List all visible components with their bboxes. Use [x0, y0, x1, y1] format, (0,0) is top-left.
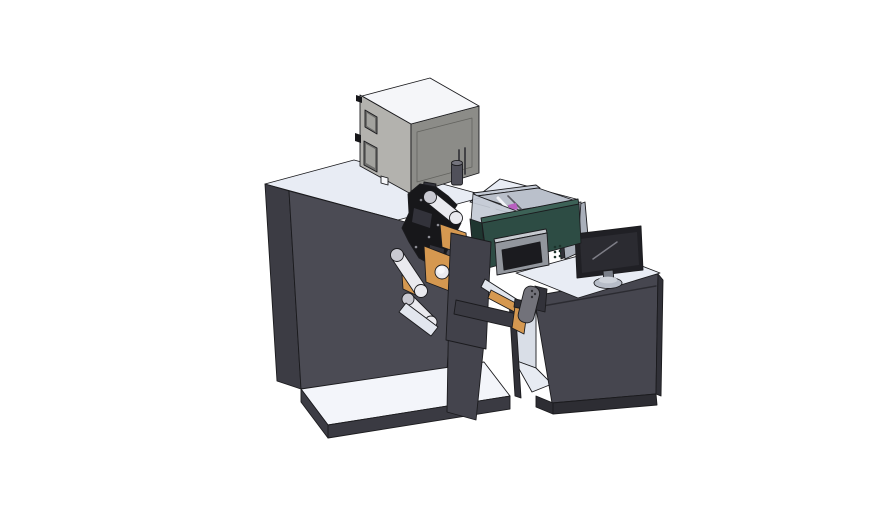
printhead-screw: [415, 246, 418, 249]
filter-cylinder: [452, 163, 463, 185]
paddle-dot: [531, 296, 533, 298]
guide-roller-1-end: [415, 285, 428, 298]
printhead-screw: [437, 224, 440, 227]
machine-render-canvas: [0, 0, 888, 522]
monitor-base-top: [599, 277, 618, 284]
front-frame-plate: [446, 233, 491, 349]
printer-vent-dot: [554, 251, 557, 254]
printer-vent-dot: [554, 246, 557, 249]
feed-roller-cap: [424, 191, 437, 204]
feed-roller-end: [450, 212, 463, 225]
printer-vent-dot: [554, 256, 557, 259]
printer-vent-dot: [559, 255, 562, 258]
printhead-screw: [428, 236, 431, 239]
top-unit-corner-plate: [381, 176, 388, 185]
idler-roller-highlight: [437, 266, 445, 274]
filter-cylinder-cap: [452, 160, 463, 165]
desk-front-face: [534, 274, 658, 403]
paddle-dot: [531, 290, 533, 292]
printer-vent-dot: [559, 250, 562, 253]
printhead-screw: [420, 199, 423, 202]
machine-render: [0, 0, 888, 522]
printer-vent-dot: [559, 245, 562, 248]
paddle-dot: [534, 293, 536, 295]
guide-roller-1-cap: [391, 249, 404, 262]
guide-roller-2-cap: [402, 293, 414, 305]
